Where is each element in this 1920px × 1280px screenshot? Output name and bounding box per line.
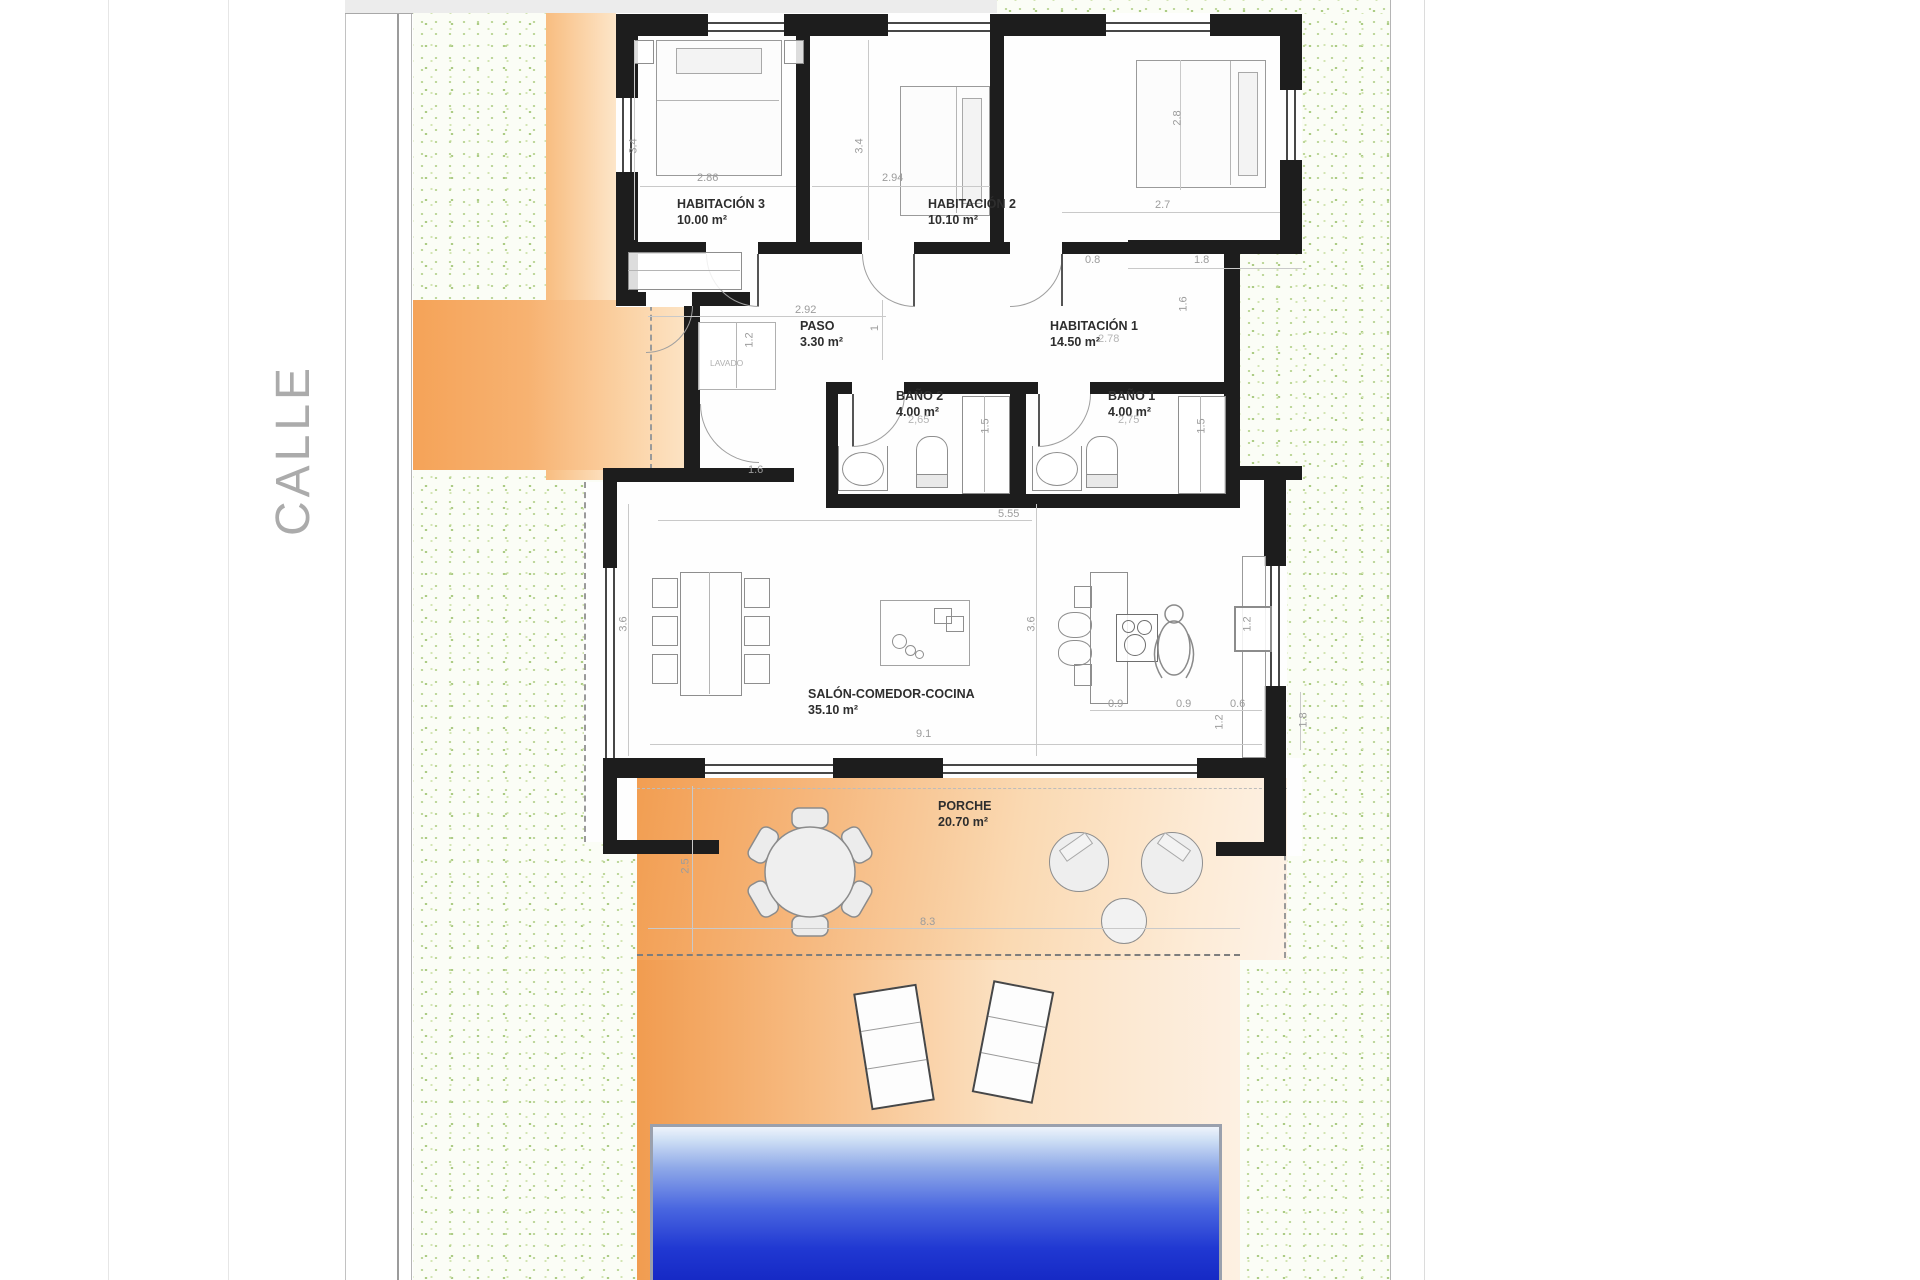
toilet-icon	[1086, 436, 1118, 478]
dimension-line	[650, 744, 1262, 745]
wall-segment	[796, 36, 810, 254]
dim-salon-left: 3.6	[618, 616, 630, 631]
room-label-lavado: LAVADO	[710, 358, 743, 368]
street-curb-line	[345, 0, 346, 1280]
chair-icon	[744, 578, 770, 608]
shower-line	[1200, 396, 1201, 492]
dim-paso-width: 2.92	[795, 304, 816, 316]
round-table-icon	[744, 806, 876, 938]
wardrobe-line	[628, 270, 740, 271]
room-name: HABITACIÓN 2	[928, 196, 1016, 212]
wall-segment	[1280, 14, 1302, 90]
shower-icon	[1178, 396, 1226, 494]
dimension-line	[868, 40, 869, 240]
window-icon	[708, 22, 784, 32]
street-label-text: CALLE	[266, 364, 321, 536]
wall-segment	[810, 242, 862, 254]
wall-segment	[1264, 686, 1286, 758]
room-name: PASO	[800, 318, 843, 334]
washer-closet-icon	[698, 322, 776, 390]
dim-entry: 1.6	[748, 464, 763, 476]
room-name: SALÓN-COMEDOR-COCINA	[808, 686, 975, 702]
closet-line	[736, 322, 737, 388]
dim-kitchen-d: 1.2	[1214, 714, 1226, 729]
dimension-line	[640, 186, 796, 187]
chair-icon	[744, 654, 770, 684]
wall-segment	[914, 242, 990, 254]
room-label-salon: SALÓN-COMEDOR-COCINA 35.10 m²	[808, 686, 975, 719]
room-label-habitacion3: HABITACIÓN 3 10.00 m²	[677, 196, 765, 229]
dining-table-icon	[680, 572, 742, 696]
dim-salon-top: 5.55	[998, 508, 1019, 520]
door-leaf	[1061, 254, 1063, 306]
kitchen-counter-icon	[1242, 556, 1266, 758]
dim-porch-width: 8.3	[920, 916, 935, 928]
dimension-line	[1090, 710, 1262, 711]
room-name: HABITACIÓN 1	[1050, 318, 1138, 334]
terrace-dashed-line	[637, 954, 1240, 956]
chair-icon	[652, 654, 678, 684]
room-area: 20.70 m²	[938, 814, 991, 830]
floor-plan-canvas: HABITACIÓN 3 10.00 m² HABITACIÓN 2 10.10…	[0, 0, 1920, 1280]
plot-boundary-line	[411, 0, 412, 1280]
wall-segment	[603, 840, 719, 854]
street-label: CALLE	[223, 357, 363, 543]
plot-boundary-line	[1390, 0, 1391, 1280]
dim-paso-r: 1	[869, 325, 881, 331]
room-area: 35.10 m²	[808, 702, 975, 718]
pillow	[962, 98, 982, 204]
dim-kitchen-a: 0.9	[1108, 698, 1123, 710]
burner	[1122, 620, 1135, 633]
toilet-tank	[1086, 474, 1118, 488]
dim-lavado: 1.2	[744, 332, 756, 347]
person-figure-icon	[1146, 594, 1206, 694]
wall-segment	[1128, 240, 1240, 254]
dim-hab3-width: 2.86	[697, 172, 718, 184]
wall-segment	[833, 758, 943, 778]
room-area: 10.10 m²	[928, 212, 1016, 228]
wall-segment	[1224, 254, 1240, 494]
dim-hab3-height: 3.4	[628, 138, 640, 153]
dim-hab2-height: 3.4	[854, 138, 866, 153]
shower-line	[984, 396, 985, 492]
chair-icon	[652, 578, 678, 608]
chair-icon	[1058, 640, 1092, 666]
wall-segment	[603, 758, 705, 778]
room-area: 14.50 m²	[1050, 334, 1138, 350]
dim-shower2: 1.5	[980, 418, 992, 433]
wall-segment	[1240, 466, 1302, 480]
page-edge-line	[1424, 0, 1425, 1280]
dim-kitchen-c: 0.6	[1230, 698, 1245, 710]
wall-segment	[1216, 842, 1286, 856]
room-label-habitacion2: HABITACIÓN 2 10.10 m²	[928, 196, 1016, 229]
table-line	[709, 572, 710, 694]
dim-shower1: 1.5	[1196, 418, 1208, 433]
toilet-tank	[916, 474, 948, 488]
dimension-line	[812, 186, 990, 187]
wall-segment	[616, 292, 646, 306]
wall-segment	[826, 394, 838, 494]
burner	[1124, 634, 1146, 656]
dim-kitchen-b: 0.9	[1176, 698, 1191, 710]
nightstand-icon	[784, 40, 804, 64]
dim-side-e: 1.8	[1298, 712, 1310, 727]
dimension-line	[692, 786, 693, 952]
pillow	[676, 48, 762, 74]
window-icon	[943, 764, 1197, 774]
decor-icon	[946, 616, 964, 632]
grass-notch	[1240, 254, 1302, 466]
wall-segment	[603, 468, 794, 482]
chair-icon	[652, 616, 678, 646]
wall-segment	[826, 382, 852, 394]
window-icon	[1286, 90, 1296, 160]
decor-icon	[915, 650, 924, 659]
setback-dashed-line	[584, 482, 586, 842]
wall-segment	[1264, 480, 1286, 566]
porch-dashed-edge	[637, 788, 1287, 789]
shower-icon	[962, 396, 1010, 494]
sink-icon	[842, 452, 884, 486]
wall-segment	[990, 14, 1106, 36]
room-label-habitacion1: HABITACIÓN 1 14.50 m²	[1050, 318, 1138, 351]
dim-notch-b: 1.8	[1194, 254, 1209, 266]
dim-notch-a: 0.8	[1085, 254, 1100, 266]
dim-hab1-bed: 2.8	[1172, 110, 1184, 125]
door-leaf	[1038, 394, 1040, 446]
window-icon	[622, 98, 632, 172]
wall-segment	[784, 14, 888, 36]
dim-hab1-depth: 2.78	[1098, 333, 1119, 345]
window-icon	[605, 568, 615, 758]
bar-stool-icon	[1074, 586, 1092, 608]
dimension-line	[1128, 268, 1302, 269]
blanket-line	[657, 100, 779, 101]
door-leaf	[757, 254, 759, 306]
wall-segment	[603, 482, 617, 568]
room-area: 10.00 m²	[677, 212, 765, 228]
wardrobe-icon	[628, 252, 742, 290]
dim-hab2-width: 2.94	[882, 172, 903, 184]
side-table-icon	[1101, 898, 1147, 944]
wall-segment	[1062, 242, 1128, 254]
blanket-line	[1230, 61, 1231, 185]
top-band	[345, 0, 997, 14]
swimming-pool	[650, 1124, 1222, 1280]
pillow	[1238, 72, 1258, 176]
room-name: HABITACIÓN 3	[677, 196, 765, 212]
wall-segment	[1197, 758, 1264, 778]
dim-porch-height: 2.5	[680, 858, 692, 873]
dim-salon-width: 9.1	[916, 728, 931, 740]
dimension-line	[648, 316, 886, 317]
dim-kitchen-box: 1.2	[1242, 616, 1254, 631]
window-icon	[888, 22, 990, 32]
dim-hab1-width: 2.7	[1155, 199, 1170, 211]
toilet-icon	[916, 436, 948, 478]
dimension-line	[882, 300, 883, 360]
bar-stool-icon	[1074, 664, 1092, 686]
nightstand-icon	[634, 40, 654, 64]
street-line	[228, 0, 229, 1280]
blanket-line	[956, 87, 957, 213]
dimension-line	[1062, 212, 1280, 213]
door-leaf	[913, 254, 915, 306]
room-name: BAÑO 1	[1108, 388, 1155, 404]
window-icon	[1106, 22, 1210, 32]
room-label-porche: PORCHE 20.70 m²	[938, 798, 991, 831]
wall-segment	[1004, 242, 1010, 254]
wall-segment	[758, 242, 796, 254]
dimension-line	[658, 520, 1032, 521]
dimension-line	[648, 928, 1240, 929]
room-name: BAÑO 2	[896, 388, 943, 404]
street-line	[108, 0, 109, 1280]
dim-salon-right: 3.6	[1026, 616, 1038, 631]
dim-notch-c: 1.6	[1178, 296, 1190, 311]
dim-bano1-width: 2,75	[1118, 414, 1139, 426]
door-leaf	[852, 394, 854, 446]
room-area: 3.30 m²	[800, 334, 843, 350]
wall-segment	[1240, 240, 1302, 254]
room-name: PORCHE	[938, 798, 991, 814]
dim-bano2-width: 2,65	[908, 414, 929, 426]
chair-icon	[744, 616, 770, 646]
grass-area	[997, 0, 1390, 13]
wall-segment	[826, 494, 1240, 508]
coffee-table-icon	[880, 600, 970, 666]
room-label-paso: PASO 3.30 m²	[800, 318, 843, 351]
wall-segment	[1010, 394, 1026, 494]
plot-boundary-line	[397, 0, 399, 1280]
chair-icon	[1058, 612, 1092, 638]
sink-icon	[1036, 452, 1078, 486]
window-icon	[705, 764, 833, 774]
